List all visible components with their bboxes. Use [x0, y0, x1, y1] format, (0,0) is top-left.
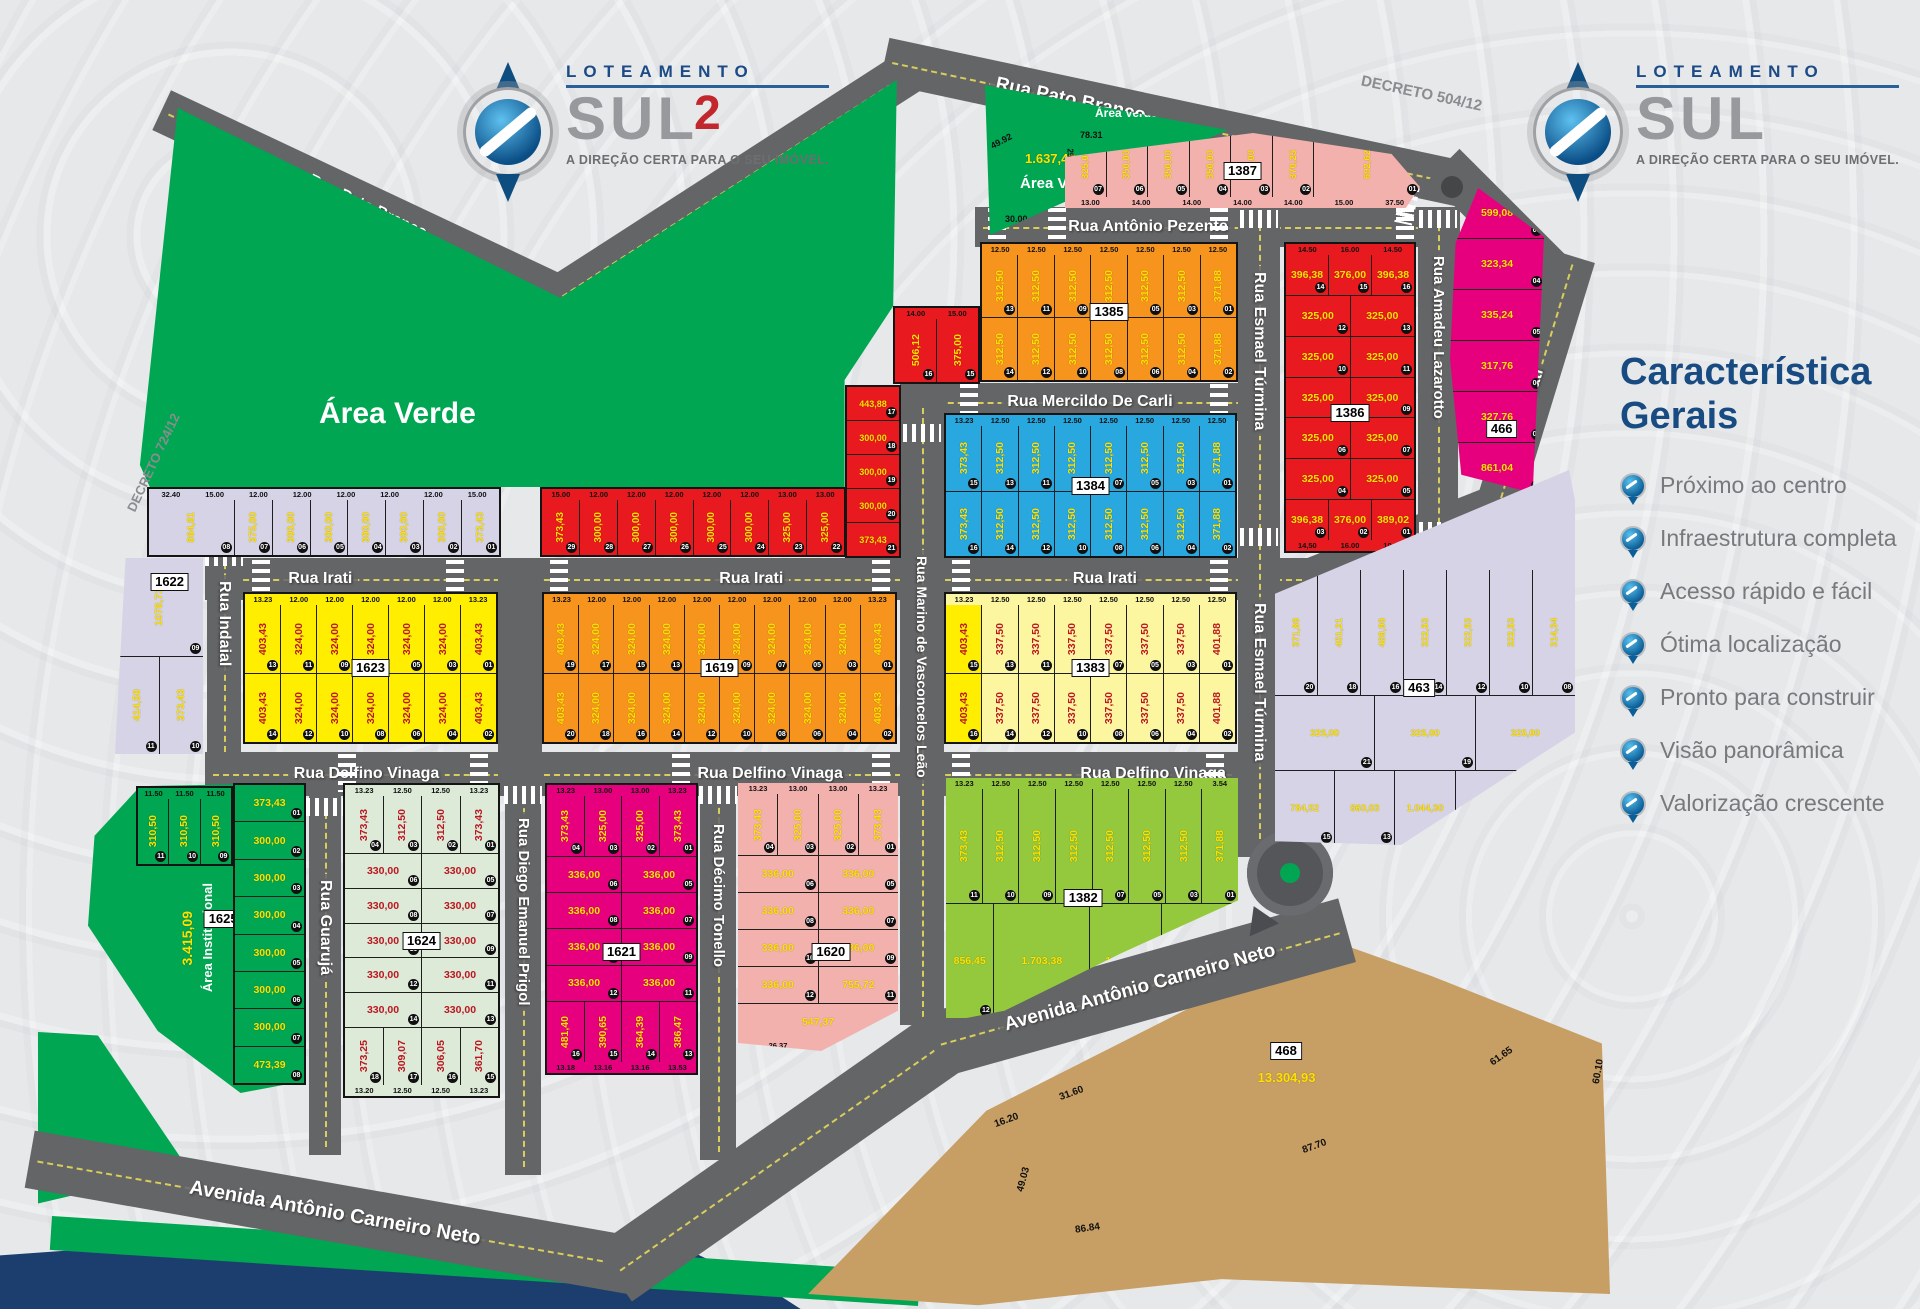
lot[interactable]: 330,0005 — [422, 854, 498, 888]
lot[interactable]: 324,0007 — [755, 605, 790, 673]
lot[interactable]: 1.652,5507 — [1516, 771, 1575, 845]
lot[interactable]: 325,0002 — [622, 796, 660, 856]
lot-area-value: 324,00 — [766, 623, 778, 655]
lot[interactable]: 300,0020 — [847, 489, 899, 522]
lot[interactable]: 336,0012 — [547, 966, 622, 1001]
lot[interactable]: 325,0004 — [1286, 459, 1351, 499]
lot[interactable]: 300,0007 — [235, 1009, 304, 1045]
lot[interactable]: 396,3803 — [1286, 500, 1329, 540]
lot-area-value: 389,02 — [1377, 514, 1409, 526]
lot-area-value: 312,50 — [1176, 270, 1188, 302]
lot[interactable]: 324,0018 — [579, 674, 614, 742]
lot-number: 10 — [1005, 890, 1016, 901]
block-1384: 13.2312.5012.5012.5012.5012.5012.5012.50… — [944, 413, 1237, 558]
lot[interactable]: 312,5009 — [1055, 255, 1091, 317]
lot-number: 10 — [1077, 367, 1088, 378]
lot[interactable]: 376,0002 — [1329, 500, 1372, 540]
lot-number: 06 — [1134, 184, 1145, 195]
feature-item-label: Infraestrutura completa — [1660, 525, 1897, 552]
lot-number: 16 — [1401, 282, 1412, 293]
lot-area-value: 324,00 — [837, 623, 849, 655]
block-number-badge: 1619 — [700, 659, 739, 677]
lot[interactable]: 325,0022 — [807, 500, 844, 555]
lot[interactable]: 371,8802 — [1201, 318, 1236, 380]
lot[interactable]: 322,5314 — [1404, 570, 1447, 695]
block-number-badge: 1386 — [1331, 404, 1370, 422]
lot[interactable]: 324,0008 — [353, 674, 389, 742]
lot[interactable]: 325,0010 — [1286, 337, 1351, 377]
lot[interactable]: 300,0019 — [847, 455, 899, 488]
street-label: Rua Marino de Vasconcelos Leão — [914, 550, 930, 784]
lot[interactable]: 324,0009 — [317, 605, 353, 673]
lot[interactable]: 373,4301 — [461, 796, 499, 853]
lot-number: 09 — [683, 952, 694, 963]
lot-number: 19 — [1462, 757, 1473, 768]
lot[interactable]: 337,5012 — [1019, 674, 1055, 742]
lot-number: 07 — [776, 660, 787, 671]
lot[interactable]: 325,0003 — [585, 796, 623, 856]
lot-area-value: 337,50 — [994, 623, 1006, 655]
lot-number: 01 — [1401, 527, 1412, 538]
lot[interactable]: 403,4313 — [245, 605, 281, 673]
lot[interactable]: 312,5008 — [1091, 492, 1127, 557]
lot[interactable]: 371,8801 — [1200, 426, 1235, 491]
lot[interactable]: 373,2518 — [345, 1028, 384, 1085]
lot[interactable]: 481,4016 — [547, 1002, 585, 1062]
lot[interactable]: 324,0012 — [685, 674, 720, 742]
lot[interactable]: 325,0021 — [1275, 696, 1375, 770]
lot[interactable]: 371,8801 — [1202, 789, 1238, 903]
lot-dimensions-row: 32.4015.0012.0012.0012.0012.0012.0015.00 — [149, 489, 499, 500]
lot[interactable]: 403,4320 — [544, 674, 579, 742]
lot[interactable]: 312,5014 — [982, 318, 1018, 380]
lot[interactable]: 325,0007 — [1351, 418, 1415, 458]
lot[interactable]: 300,0005 — [311, 500, 349, 555]
feature-item-label: Valorização crescente — [1660, 790, 1885, 817]
lot[interactable]: 403,4301 — [461, 605, 496, 673]
lot[interactable]: 324,0011 — [281, 605, 317, 673]
lot[interactable]: 373,4311 — [946, 789, 983, 903]
lot[interactable]: 312,5010 — [1055, 492, 1091, 557]
lot[interactable]: 324,0004 — [826, 674, 861, 742]
lot[interactable]: 325,0005 — [1351, 459, 1415, 499]
lot[interactable]: 336,0011 — [622, 966, 696, 1001]
lot[interactable]: 401,8801 — [1200, 605, 1235, 673]
lot[interactable]: 310,5010 — [169, 799, 200, 864]
lot[interactable]: 375,0015 — [937, 319, 978, 382]
lot[interactable]: 322,5312 — [1447, 570, 1490, 695]
lot-row: 373,2518309,0717306,0516361,7015 — [345, 1027, 498, 1085]
lot-area-value: 300,00 — [253, 835, 285, 847]
lot[interactable]: 314,3408 — [1533, 570, 1575, 695]
lot-number: 28 — [604, 542, 615, 553]
lot[interactable]: 324,0008 — [755, 674, 790, 742]
lot-number: 02 — [448, 542, 459, 553]
lot-number: 04 — [1337, 486, 1348, 497]
lot-number: 06 — [1150, 729, 1161, 740]
lot[interactable]: 336,0006 — [547, 857, 622, 892]
lot[interactable]: 336,0005 — [819, 856, 899, 892]
lot[interactable]: 373,4321 — [847, 523, 899, 556]
lot[interactable]: 373,4315 — [946, 426, 982, 491]
lot[interactable]: 324,0005 — [790, 605, 825, 673]
lot[interactable]: 337,5006 — [1127, 674, 1163, 742]
lot[interactable]: 312,5013 — [982, 255, 1018, 317]
lot-number: 05 — [1152, 890, 1163, 901]
lot[interactable]: 324,0014 — [650, 674, 685, 742]
lot-dimensions-row: 26.3726.72 — [738, 1040, 898, 1051]
lot-number: 13 — [1401, 323, 1412, 334]
lot[interactable]: 324,0016 — [614, 674, 649, 742]
lot[interactable]: 336,0007 — [622, 893, 696, 928]
lot[interactable]: 373,4301 — [235, 785, 304, 821]
lot-number: 07 — [1562, 832, 1573, 843]
lot-area-value: 371,88 — [1214, 830, 1226, 862]
lot[interactable]: 312,5005 — [1127, 426, 1163, 491]
lot-number: 15 — [968, 478, 979, 489]
lot[interactable]: 312,5004 — [1164, 492, 1200, 557]
lot[interactable]: 312,5006 — [1128, 318, 1164, 380]
lot[interactable]: 337,5003 — [1164, 605, 1200, 673]
lot-area-value: 403,43 — [555, 623, 567, 655]
lot[interactable]: 325,0012 — [1286, 296, 1351, 336]
lot[interactable]: 324,0010 — [317, 674, 353, 742]
lot-number: 03 — [847, 660, 858, 671]
lot-row: 373,4304325,0003325,0002373,4301 — [738, 794, 898, 855]
lot-row: 336,0012755,7211 — [738, 966, 898, 1003]
lot[interactable]: 312,5012 — [1018, 318, 1054, 380]
crosswalk — [903, 424, 941, 442]
lot[interactable]: 337,5004 — [1164, 674, 1200, 742]
lot[interactable]: 373,4301 — [462, 500, 499, 555]
block-lavender-strip: 32.4015.0012.0012.0012.0012.0012.0015.00… — [147, 487, 501, 557]
lot-number: 12 — [1041, 729, 1052, 740]
lot-area-value: 310,50 — [147, 815, 159, 847]
lot-area-value: 322,53 — [1506, 618, 1517, 647]
block-number-badge: 1623 — [351, 659, 390, 677]
lot[interactable]: 317,7606 — [1450, 341, 1544, 391]
lot[interactable]: 403,4301 — [861, 605, 895, 673]
lot-area-value: 300,00 — [744, 512, 755, 543]
lot[interactable]: 300,0024 — [731, 500, 769, 555]
lot-area-value: 312,50 — [1030, 333, 1042, 365]
lot-area-value: 373,25 — [358, 1040, 370, 1072]
lot[interactable]: 401,8802 — [1200, 674, 1235, 742]
lot[interactable]: 310,5011 — [138, 799, 169, 864]
lot[interactable]: 489,9816 — [1361, 570, 1404, 695]
lot[interactable]: 323,3404 — [1450, 239, 1544, 289]
lot[interactable]: 373,4316 — [946, 492, 982, 557]
lot[interactable]: 373,4304 — [738, 794, 778, 855]
lot[interactable]: 337,5011 — [1019, 605, 1055, 673]
lot-number: 14 — [1005, 543, 1016, 554]
lot[interactable]: 864,8108 — [149, 500, 235, 555]
lot[interactable]: 312,5011 — [1018, 255, 1054, 317]
lot[interactable]: 312,5009 — [1019, 789, 1056, 903]
lot[interactable]: 324,0013 — [650, 605, 685, 673]
lot[interactable]: 373,4310 — [160, 657, 204, 755]
lot-area-value: 324,00 — [802, 623, 814, 655]
lot[interactable]: 443,8817 — [847, 387, 899, 420]
lot-number: 20 — [886, 509, 897, 520]
lot[interactable]: 300,0004 — [235, 897, 304, 933]
lot[interactable]: 300,0005 — [235, 935, 304, 971]
lot[interactable]: 300,0003 — [386, 500, 424, 555]
lot-number: 13 — [671, 660, 682, 671]
lot[interactable]: 324,0017 — [579, 605, 614, 673]
lot[interactable]: 312,5011 — [1019, 426, 1055, 491]
lot-area-value: 547,37 — [802, 1016, 834, 1028]
lot[interactable]: 312,5010 — [1055, 318, 1091, 380]
lot[interactable]: 300,0006 — [273, 500, 311, 555]
lot-dimensions-row: 14.5016.0014.50 — [1286, 244, 1414, 255]
lot-number: 12 — [408, 979, 419, 990]
block-number-badge: 1621 — [602, 943, 641, 961]
lot[interactable]: 300,0003 — [235, 860, 304, 896]
lot-number: 07 — [259, 542, 270, 553]
lot[interactable]: 312,5005 — [1129, 789, 1166, 903]
lot[interactable]: 312,5003 — [1164, 255, 1200, 317]
lot[interactable]: 386,4713 — [660, 1002, 697, 1062]
lot[interactable]: 337,5005 — [1127, 605, 1163, 673]
lot-number: 04 — [1187, 367, 1198, 378]
lot-number: 03 — [1315, 527, 1326, 538]
lot[interactable]: 300,0004 — [348, 500, 386, 555]
lot[interactable]: 336,0006 — [738, 856, 819, 892]
compass-pin-icon — [1620, 579, 1646, 605]
block-1621: 13.2313.0013.0013.23373,4304325,0003325,… — [545, 783, 698, 1075]
lot-number: 09 — [741, 660, 752, 671]
lot[interactable]: 371,8802 — [1200, 492, 1235, 557]
lot-number: 08 — [1562, 682, 1573, 693]
lot[interactable]: 300,0025 — [694, 500, 732, 555]
lot[interactable]: 403,4316 — [946, 674, 982, 742]
feature-item: Infraestrutura completa — [1620, 525, 1920, 552]
lot-area-value: 306,05 — [435, 1040, 447, 1072]
lot[interactable]: 300,0002 — [235, 822, 304, 858]
lot[interactable]: 376,0015 — [1329, 255, 1372, 295]
lot[interactable]: 337,5008 — [1091, 674, 1127, 742]
lot[interactable]: 312,5012 — [1019, 492, 1055, 557]
lot-area-value: 312,50 — [1139, 508, 1151, 540]
lot[interactable]: 375,0007 — [235, 500, 273, 555]
lot[interactable]: 330,0014 — [345, 993, 422, 1027]
lot-number: 11 — [885, 990, 896, 1001]
lot[interactable]: 312,5006 — [1127, 492, 1163, 557]
lot[interactable]: 336,0010 — [738, 930, 819, 966]
lot[interactable]: 1.044,3011 — [1395, 771, 1455, 845]
lot[interactable]: 1.068,6009 — [1456, 771, 1516, 845]
lot-row: 506,1216375,0015 — [895, 319, 978, 382]
lot[interactable]: 312,5010 — [983, 789, 1020, 903]
lot[interactable]: 330,0011 — [422, 958, 498, 992]
lot[interactable]: 300,0028 — [580, 500, 618, 555]
lot-area-value: 324,00 — [401, 623, 413, 655]
lot[interactable]: 337,5010 — [1055, 674, 1091, 742]
lot[interactable]: 310,5009 — [201, 799, 231, 864]
lot[interactable]: 324,0006 — [790, 674, 825, 742]
lot[interactable]: 364,3914 — [622, 1002, 660, 1062]
lot[interactable]: 312,5003 — [1164, 426, 1200, 491]
lot[interactable]: 403,4314 — [245, 674, 281, 742]
lot-dimensions-row: 13.2012.5012.5013.23 — [345, 1085, 498, 1096]
area-institucional-label: Área Institucional — [200, 883, 215, 992]
lot[interactable]: 373,4304 — [345, 796, 384, 853]
lot[interactable]: 324,0003 — [425, 605, 461, 673]
lot[interactable]: 300,0018 — [847, 421, 899, 454]
lot[interactable]: 373,4329 — [542, 500, 580, 555]
lot[interactable]: 336,0012 — [738, 967, 819, 1003]
lot[interactable]: 312,5007 — [1093, 789, 1130, 903]
lot[interactable]: 414,5011 — [115, 657, 160, 755]
lot[interactable]: 300,0026 — [656, 500, 694, 555]
lot-number: 01 — [291, 808, 302, 819]
lot-number: 04 — [1186, 543, 1197, 554]
lot[interactable]: 336,0008 — [738, 893, 819, 929]
lot-row: 336,0006336,0005 — [738, 855, 898, 892]
lot[interactable]: 312,5008 — [1056, 789, 1093, 903]
lot[interactable]: 403,4302 — [461, 674, 496, 742]
lot[interactable]: 300,0027 — [618, 500, 656, 555]
lot-dimensions-row: 14.0015.00 — [895, 308, 978, 319]
lot[interactable]: 373,4304 — [547, 796, 585, 856]
lot-number: 15 — [1321, 832, 1332, 843]
lot[interactable]: 325,0011 — [1351, 337, 1415, 377]
lot[interactable]: 325,0023 — [769, 500, 807, 555]
lot[interactable]: 337,5013 — [982, 605, 1018, 673]
lot[interactable]: 312,5002 — [422, 796, 461, 853]
lot-row: 300,0003 — [235, 859, 304, 896]
lot[interactable]: 336,0005 — [622, 857, 696, 892]
lot[interactable]: 330,0012 — [345, 958, 422, 992]
lot[interactable]: 312,5003 — [384, 796, 423, 853]
lot[interactable]: 337,5014 — [982, 674, 1018, 742]
lot[interactable]: 324,0010 — [720, 674, 755, 742]
panel-title: Característica Gerais — [1620, 350, 1920, 438]
lot-area-value: 375,00 — [952, 334, 964, 366]
lot-area-value: 324,00 — [766, 692, 778, 724]
lot-number: 02 — [1222, 729, 1233, 740]
lot[interactable]: 300,0006 — [235, 972, 304, 1008]
lot[interactable]: 755,7211 — [819, 967, 899, 1003]
lot[interactable]: 856,4512 — [946, 904, 994, 1018]
block-red-north: 14.0015.00506,1216375,0015 — [893, 306, 980, 384]
lot-area-value: 1.044,30 — [1407, 803, 1444, 814]
lot[interactable]: 860,0313 — [1335, 771, 1395, 845]
lot-area-value: 324,00 — [696, 623, 708, 655]
lot-area-value: 322,53 — [1420, 618, 1431, 647]
lot-area-value: 300,00 — [859, 467, 887, 477]
lot[interactable]: 312,5004 — [1164, 318, 1200, 380]
lot[interactable]: 330,0013 — [422, 993, 498, 1027]
lot-area-value: 300,00 — [593, 512, 604, 543]
lot[interactable]: 330,0006 — [345, 854, 422, 888]
lot[interactable]: 361,7015 — [461, 1028, 499, 1085]
lot[interactable]: 506,1216 — [895, 319, 937, 382]
lot-number: 11 — [1442, 832, 1453, 843]
lot[interactable]: 322,5310 — [1490, 570, 1533, 695]
lot[interactable]: 330,0007 — [422, 889, 498, 923]
lot[interactable]: 312,5003 — [1166, 789, 1203, 903]
lot-number: 02 — [1223, 367, 1234, 378]
lot[interactable]: 373,4301 — [660, 796, 697, 856]
lot[interactable]: 325,0013 — [1351, 296, 1415, 336]
lot[interactable]: 309,0717 — [384, 1028, 423, 1085]
lot[interactable]: 335,2405 — [1450, 290, 1544, 340]
lot-area-value: 336,00 — [643, 941, 675, 953]
map-annotation: 60.10 — [1591, 1058, 1606, 1085]
lot[interactable]: 547,3713 — [738, 1004, 898, 1040]
lot[interactable]: 396,3814 — [1286, 255, 1329, 295]
lot-area-value: 324,00 — [731, 692, 743, 724]
lot[interactable]: 403,4315 — [946, 605, 982, 673]
lot[interactable]: 312,5008 — [1091, 318, 1127, 380]
lot[interactable]: 312,5013 — [982, 426, 1018, 491]
lot-area-value: 325,00 — [832, 809, 844, 841]
lot[interactable]: 390,6515 — [585, 1002, 623, 1062]
lot-area-value: 324,00 — [731, 623, 743, 655]
lot[interactable]: 325,0017 — [1476, 696, 1575, 770]
lot[interactable]: 325,0006 — [1286, 418, 1351, 458]
lot-number: 08 — [1113, 543, 1124, 554]
lot[interactable]: 330,0008 — [345, 889, 422, 923]
lot[interactable]: 336,0008 — [547, 893, 622, 928]
lot[interactable]: 403,4319 — [544, 605, 579, 673]
lot[interactable]: 373,4301 — [859, 794, 898, 855]
lot[interactable]: 370,2502 — [1273, 133, 1315, 197]
lot[interactable]: 371,8801 — [1201, 255, 1236, 317]
lot[interactable]: 336,0007 — [819, 893, 899, 929]
lot-number: 16 — [968, 543, 979, 554]
lot[interactable]: 306,0516 — [422, 1028, 461, 1085]
lot-area-value: 373,43 — [559, 810, 571, 842]
lot[interactable]: 324,0004 — [425, 674, 461, 742]
lot-number: 05 — [334, 542, 345, 553]
street-label: Rua Guarujá — [317, 874, 333, 981]
lot[interactable]: 325,0002 — [819, 794, 859, 855]
lot[interactable]: 324,0012 — [281, 674, 317, 742]
lot[interactable]: 325,0003 — [778, 794, 818, 855]
lot-row: 300,0002 — [235, 821, 304, 858]
lot[interactable]: 300,0002 — [424, 500, 462, 555]
lot-area-value: 396,38 — [1377, 269, 1409, 281]
street-label: Rua Indaial — [216, 575, 232, 672]
lot[interactable]: 324,0015 — [614, 605, 649, 673]
lot-number: 05 — [485, 875, 496, 886]
lot[interactable]: 324,0006 — [389, 674, 425, 742]
lot[interactable]: 389,0201 — [1372, 500, 1414, 540]
lot[interactable]: 784,5215 — [1275, 771, 1335, 845]
lot[interactable]: 325,0019 — [1375, 696, 1475, 770]
compass-logo-icon — [1532, 62, 1624, 202]
lot[interactable]: 396,3816 — [1372, 255, 1414, 295]
lot-area-value: 325,00 — [597, 810, 609, 842]
lot[interactable]: 312,5014 — [982, 492, 1018, 557]
lot-area-value: 324,00 — [329, 692, 341, 724]
lot[interactable]: 403,4302 — [861, 674, 895, 742]
lot-area-value: 337,50 — [1103, 623, 1115, 655]
lot[interactable]: 324,0003 — [826, 605, 861, 673]
lot[interactable]: 473,3908 — [235, 1047, 304, 1083]
lot[interactable]: 451,2118 — [1318, 570, 1361, 695]
road-diego-emanuel-prigol: Rua Diego Emanuel Prigol — [505, 780, 541, 1175]
lot-area-value: 330,00 — [444, 969, 476, 981]
lot-row: 330,0006330,0005 — [345, 853, 498, 888]
lot[interactable]: 312,5005 — [1128, 255, 1164, 317]
lot-number: 02 — [1222, 543, 1233, 554]
lot-row: 784,5215860,03131.044,30111.068,60091.65… — [1275, 770, 1575, 845]
lot[interactable]: 324,0005 — [389, 605, 425, 673]
